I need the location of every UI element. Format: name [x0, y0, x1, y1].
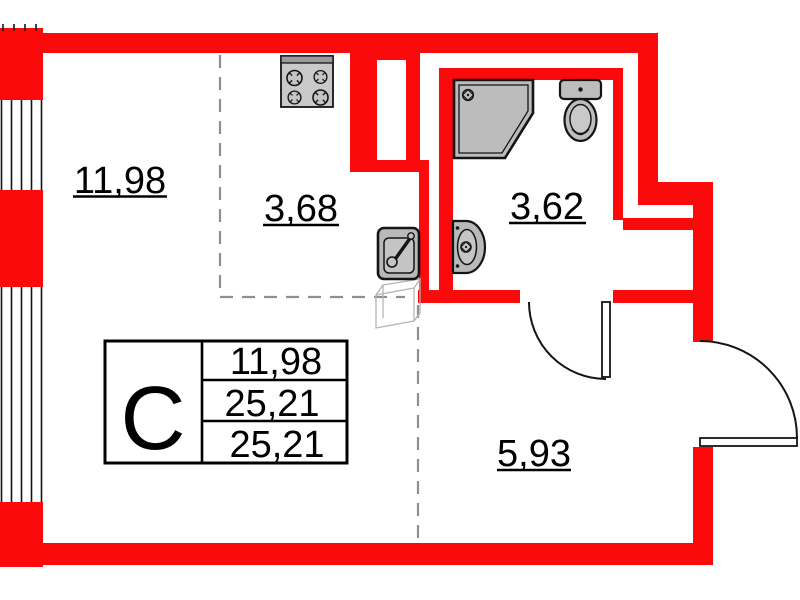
window-upper	[0, 100, 43, 190]
washbasin-mount-dot	[456, 264, 460, 268]
entry-door	[700, 341, 797, 446]
wall-top	[0, 33, 658, 53]
unit-table-value-3: 25,21	[229, 424, 324, 466]
floor-plan: 11,98 3,68 3,62 5,93 C 11,98 25,21 25,21	[0, 0, 800, 600]
shaft-wall-left	[350, 53, 377, 172]
bathroom-door	[529, 302, 610, 379]
wall-bottom	[0, 543, 713, 565]
shaft-wall-bottom	[350, 160, 420, 172]
burner-icon	[288, 91, 301, 104]
kitchen-area-label: 3,68	[264, 188, 338, 230]
burner-icon	[314, 71, 327, 84]
shaft-wall-right	[406, 53, 420, 172]
washbasin-mount-dot	[456, 226, 460, 230]
sink-faucet-knob	[408, 233, 414, 239]
washbasin	[453, 221, 485, 273]
bathroom-door-swing-arc	[529, 302, 606, 379]
unit-table-value-1: 11,98	[230, 341, 322, 383]
stove-handle-bar	[281, 56, 333, 63]
wall-right-above-door	[693, 182, 713, 342]
burner-icon	[313, 90, 328, 105]
toilet	[560, 80, 601, 141]
bath-niche-band	[623, 218, 693, 230]
burner-icon	[287, 71, 302, 86]
bath-wall-bottom-left	[418, 290, 520, 303]
shaft-wall-top	[377, 53, 406, 60]
wall-right-below-door	[693, 447, 713, 565]
kitchen-sink	[378, 228, 419, 279]
bath-lining-top	[439, 68, 623, 80]
doors	[529, 302, 797, 446]
unit-table-value-2: 25,21	[224, 383, 319, 425]
unit-info-table: C 11,98 25,21 25,21	[105, 341, 347, 469]
window-lower	[0, 287, 43, 502]
floor-plan-canvas: 11,98 3,68 3,62 5,93 C 11,98 25,21 25,21	[0, 0, 800, 600]
toilet-button	[578, 87, 582, 91]
bath-lining-left	[439, 68, 453, 303]
wall-left-middle	[0, 190, 43, 287]
bath-wall-bottom-right	[613, 290, 693, 303]
shower-cabin	[454, 80, 533, 158]
ghost-appliance-outline	[376, 279, 420, 328]
bathroom-area-label: 3,62	[510, 186, 584, 228]
wall-right-upper	[638, 33, 658, 182]
stove	[281, 56, 333, 107]
bathroom-door-leaf	[602, 302, 610, 377]
hallway-area-label: 5,93	[497, 433, 571, 475]
unit-type-letter: C	[121, 369, 186, 469]
bath-lining-right	[613, 68, 623, 220]
zone-dividers	[220, 55, 418, 542]
entry-door-leaf	[700, 438, 797, 446]
entry-door-swing-arc	[700, 341, 797, 438]
